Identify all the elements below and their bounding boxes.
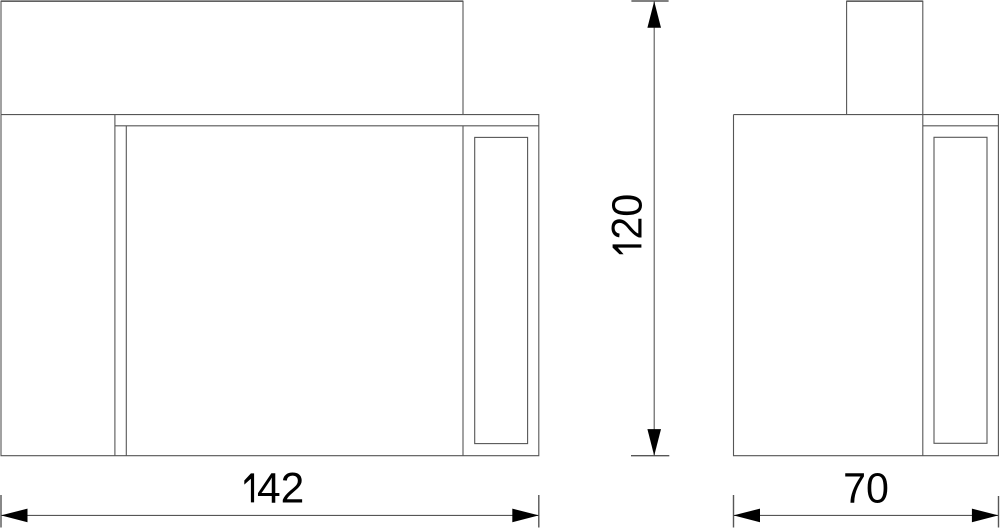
svg-text:42: 42 [257, 465, 304, 513]
svg-text:70: 70 [843, 465, 889, 513]
svg-text:20: 20 [604, 194, 652, 240]
